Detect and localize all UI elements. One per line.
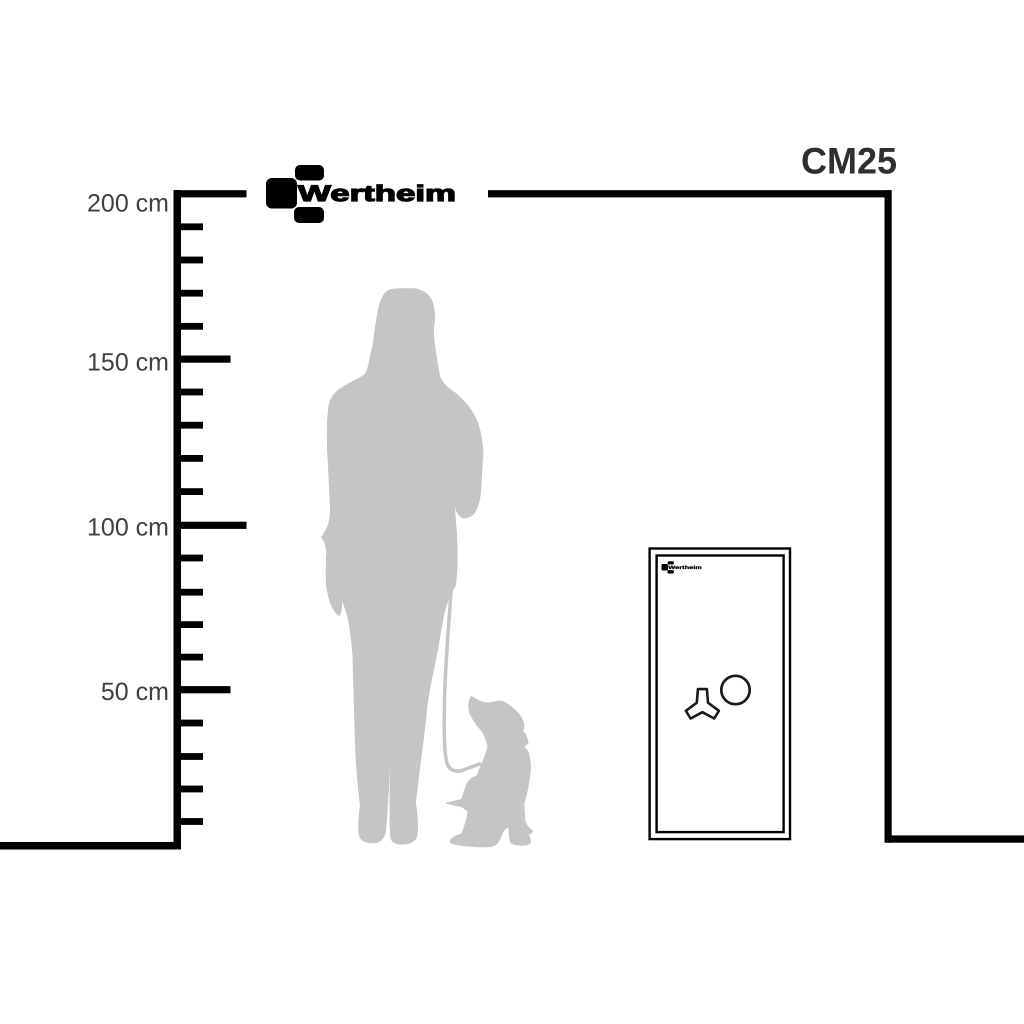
svg-text:100 cm: 100 cm xyxy=(87,514,169,542)
svg-text:50 cm: 50 cm xyxy=(101,678,169,706)
svg-text:200 cm: 200 cm xyxy=(87,190,169,218)
svg-text:CM25: CM25 xyxy=(801,141,897,182)
svg-text:150 cm: 150 cm xyxy=(87,349,169,377)
